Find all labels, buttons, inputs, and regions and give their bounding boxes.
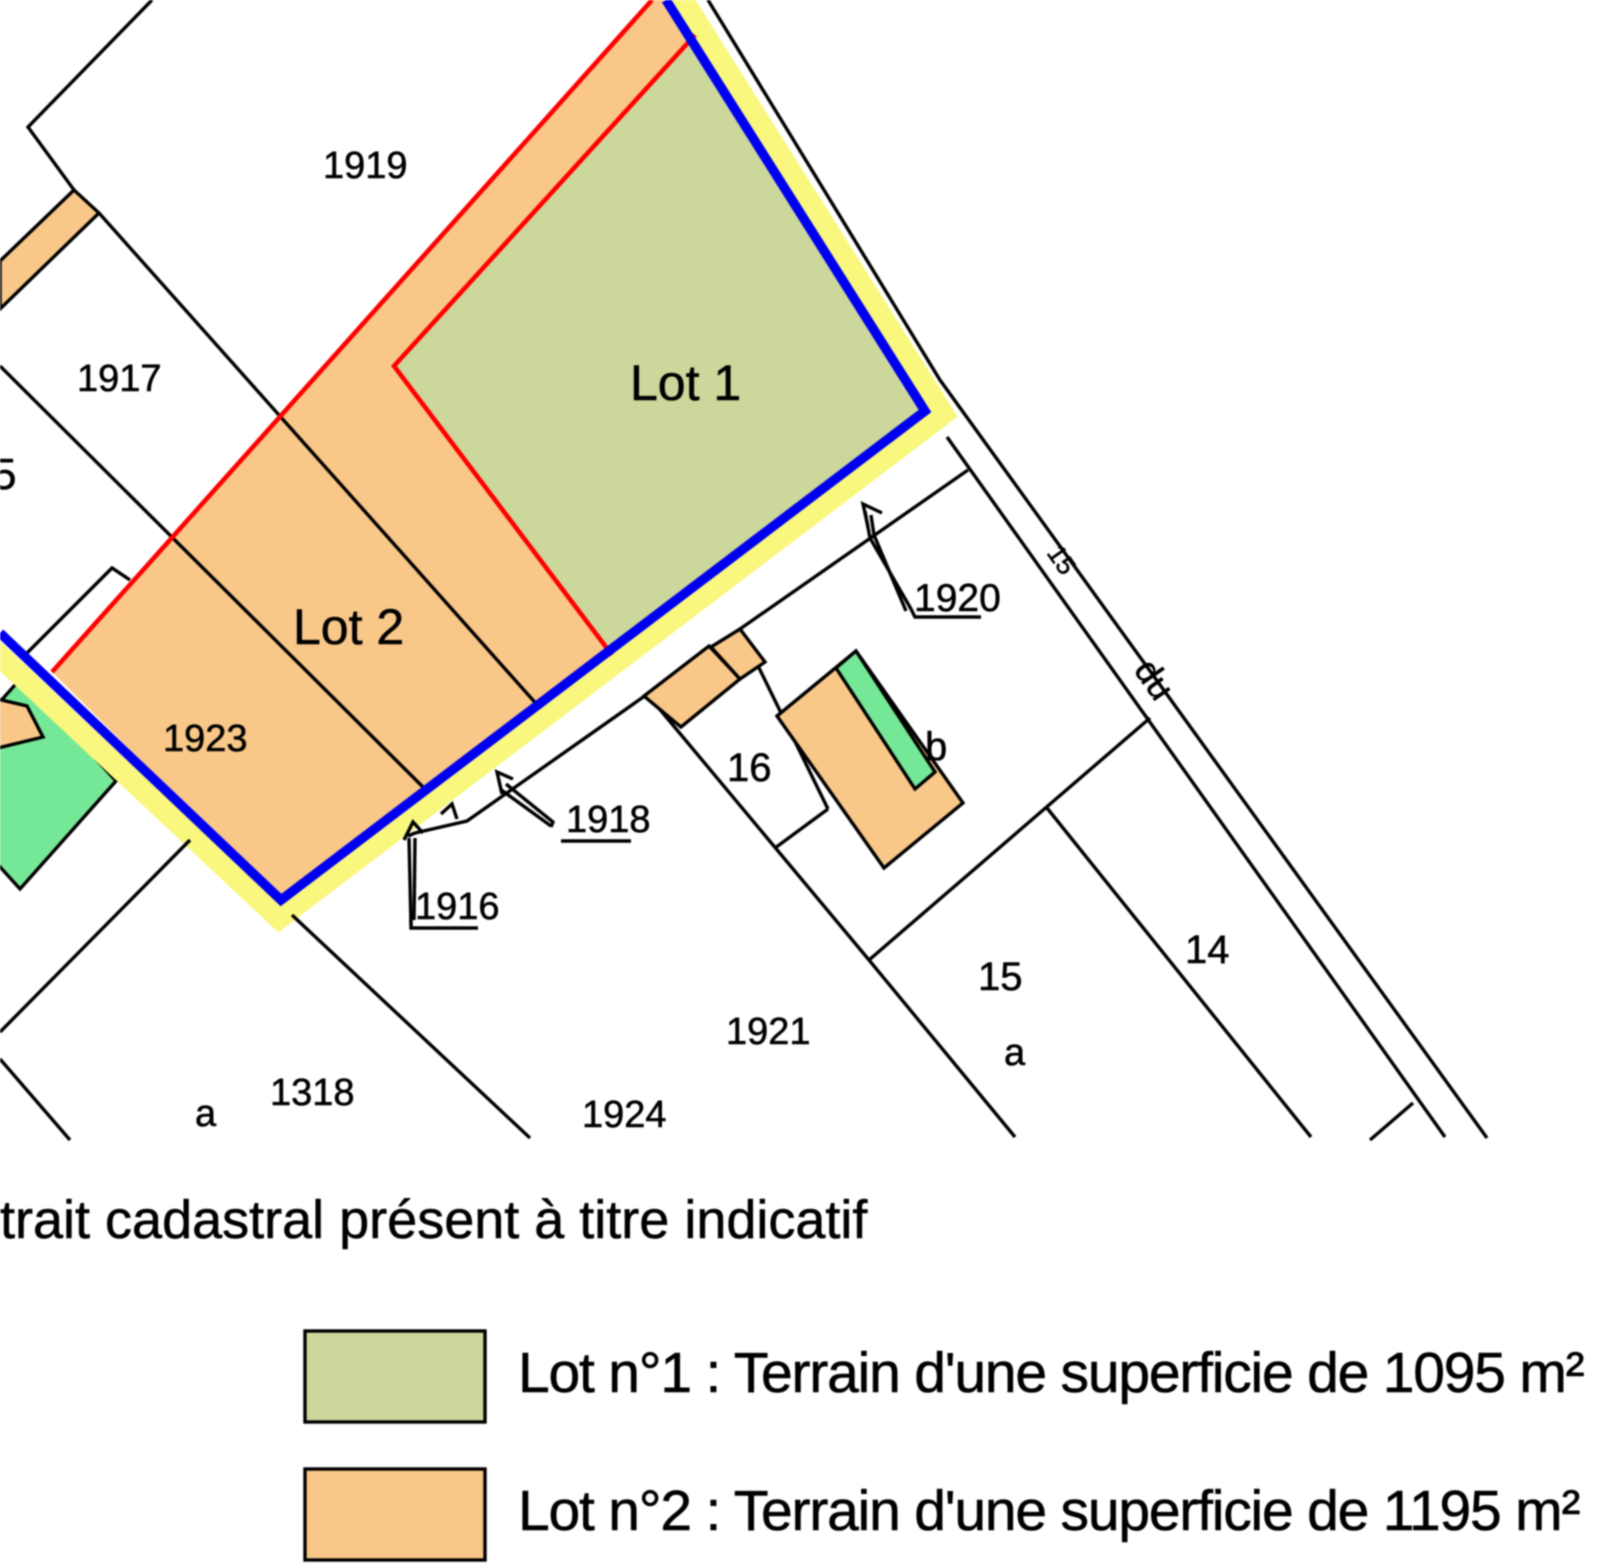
svg-text:1924: 1924 xyxy=(582,1094,667,1136)
svg-text:Lot 2: Lot 2 xyxy=(293,599,404,655)
svg-text:1918: 1918 xyxy=(566,799,651,841)
svg-text:1920: 1920 xyxy=(914,577,1001,620)
svg-text:15: 15 xyxy=(978,955,1023,999)
svg-text:14: 14 xyxy=(1185,928,1230,972)
svg-text:a: a xyxy=(1004,1032,1026,1074)
svg-text:Extrait cadastral présent à ti: Extrait cadastral présent à titre indica… xyxy=(0,1190,868,1250)
svg-text:1923: 1923 xyxy=(163,718,248,760)
svg-text:a: a xyxy=(195,1093,217,1135)
svg-text:1916: 1916 xyxy=(415,886,500,928)
svg-text:1921: 1921 xyxy=(726,1011,811,1053)
svg-text:b: b xyxy=(925,725,947,769)
svg-text:Lot n°2 : Terrain d'une superf: Lot n°2 : Terrain d'une superficie de 11… xyxy=(518,1479,1579,1543)
svg-text:Lot 1: Lot 1 xyxy=(630,355,741,411)
svg-text:16: 16 xyxy=(727,746,772,790)
svg-text:1919: 1919 xyxy=(323,145,408,187)
svg-text:1318: 1318 xyxy=(270,1072,355,1114)
svg-text:5: 5 xyxy=(0,450,16,499)
svg-text:Lot n°1 : Terrain d'une superf: Lot n°1 : Terrain d'une superficie de 10… xyxy=(518,1341,1584,1405)
svg-text:1917: 1917 xyxy=(77,358,162,400)
